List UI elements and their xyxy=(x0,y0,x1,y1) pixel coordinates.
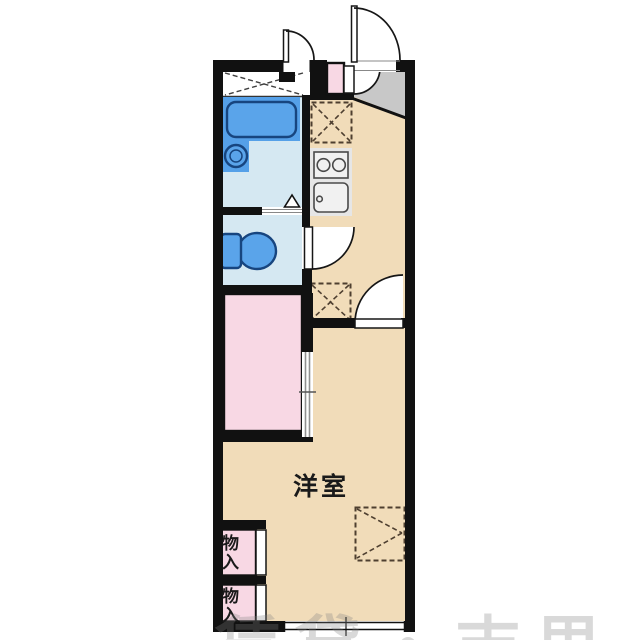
sliding-door xyxy=(302,352,313,437)
entrance-door-arc xyxy=(354,8,400,60)
main-room-label: 洋室 xyxy=(293,467,363,503)
exterior-door-arc xyxy=(286,31,314,60)
storage-label-top: 物入 xyxy=(221,534,240,572)
floorplan-drawing xyxy=(0,0,640,640)
faucet-icon xyxy=(317,196,323,202)
toilet-tank-icon xyxy=(221,234,241,268)
exterior-door-leaf xyxy=(284,30,289,62)
toilet-fixture xyxy=(221,233,276,269)
storage-door-top xyxy=(256,530,266,575)
floorplan-canvas: 洋室 物入 物入 賃貸・吉里 xyxy=(0,0,640,640)
toilet-bowl-icon xyxy=(238,233,276,269)
stove-burner-icon xyxy=(333,159,346,172)
entrance-door-leaf xyxy=(352,6,358,62)
entrance-closet-door-leaf xyxy=(344,66,354,93)
bathtub-icon xyxy=(227,102,296,137)
exterior-doors xyxy=(284,6,401,62)
storage-room-floor xyxy=(224,294,302,431)
stove-burner-icon xyxy=(317,159,330,172)
watermark-text: 賃貸・吉里 xyxy=(215,594,615,640)
toilet-door-leaf xyxy=(305,227,313,269)
main-room-door-leaf xyxy=(355,319,403,328)
washbasin-icon xyxy=(225,145,247,167)
entrance-storage-box xyxy=(327,63,344,94)
bath-folding-door xyxy=(262,207,302,215)
